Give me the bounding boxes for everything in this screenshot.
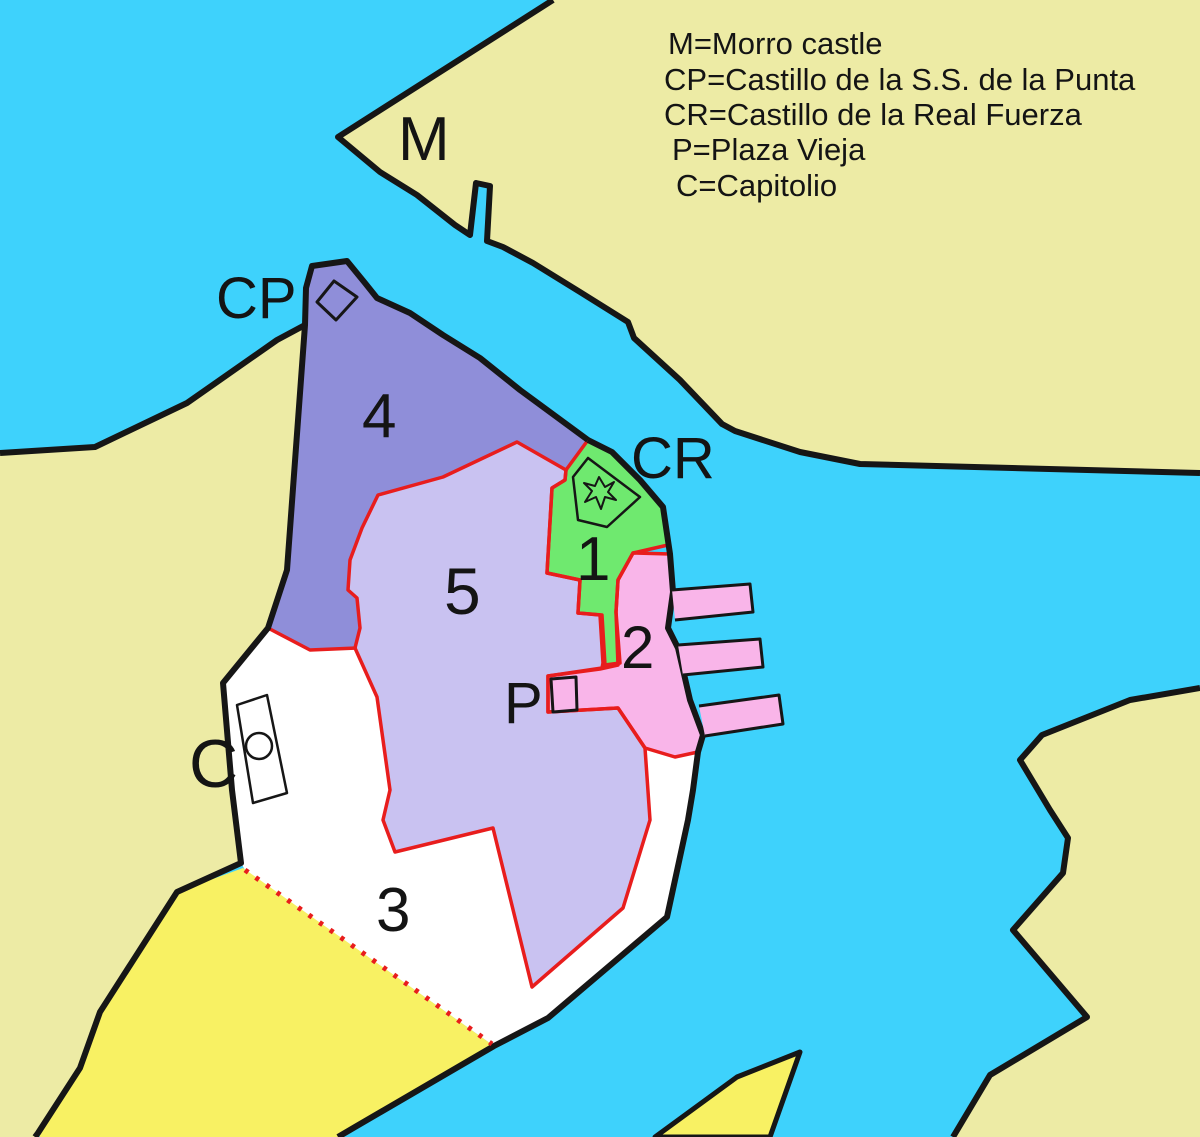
- legend-item-fuerza: CR=Castillo de la Real Fuerza: [664, 97, 1083, 132]
- marker-district-2: 2: [621, 614, 654, 681]
- marker-punta: CP: [216, 266, 297, 331]
- marker-district-3: 3: [376, 876, 410, 945]
- capitolio-dome: [246, 733, 272, 759]
- havana-map: M=Morro castleCP=Castillo de la S.S. de …: [0, 0, 1200, 1137]
- marker-district-5: 5: [444, 554, 481, 628]
- plaza-vieja-outline: [551, 677, 577, 712]
- marker-district-1: 1: [576, 525, 610, 594]
- marker-morro: M: [398, 105, 450, 174]
- marker-district-4: 4: [362, 382, 396, 451]
- legend-item-punta: CP=Castillo de la S.S. de la Punta: [664, 62, 1136, 97]
- marker-fuerza: CR: [631, 426, 715, 491]
- legend-item-plaza: P=Plaza Vieja: [672, 132, 866, 167]
- marker-capitolio: C: [189, 726, 238, 802]
- legend-item-capitolio: C=Capitolio: [676, 168, 837, 203]
- marker-plaza: P: [504, 671, 543, 736]
- map-canvas: M=Morro castleCP=Castillo de la S.S. de …: [0, 0, 1200, 1137]
- legend-item-morro: M=Morro castle: [668, 26, 882, 61]
